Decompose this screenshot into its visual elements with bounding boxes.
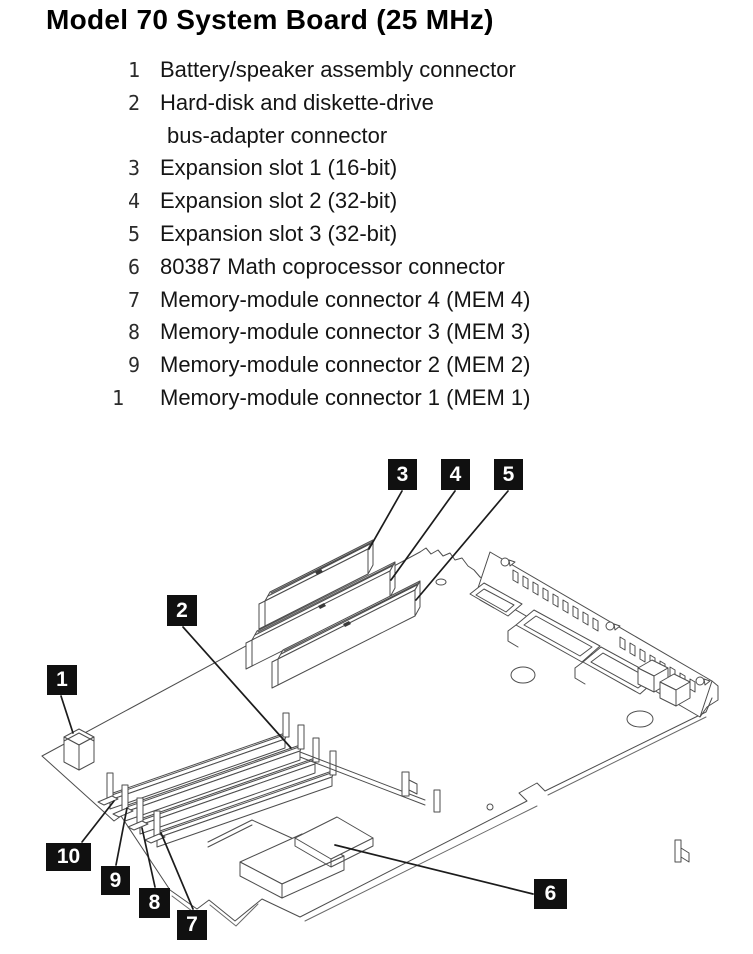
callout-4: 4 [441,459,470,490]
callout-5: 5 [494,459,523,490]
document-page: Model 70 System Board (25 MHz) 1 Battery… [0,0,753,954]
memory-module-connectors [98,713,425,847]
rear-bracket [470,552,718,727]
callout-1: 1 [47,665,77,695]
callout-6: 6 [534,879,567,909]
callout-8: 8 [139,888,170,918]
callout-3: 3 [388,459,417,490]
system-board-line-drawing [0,0,753,954]
callout-9: 9 [101,866,130,895]
callout-10: 10 [46,843,91,871]
callout-7: 7 [177,910,207,940]
callout-2: 2 [167,595,197,626]
battery-speaker-connector [64,729,94,770]
